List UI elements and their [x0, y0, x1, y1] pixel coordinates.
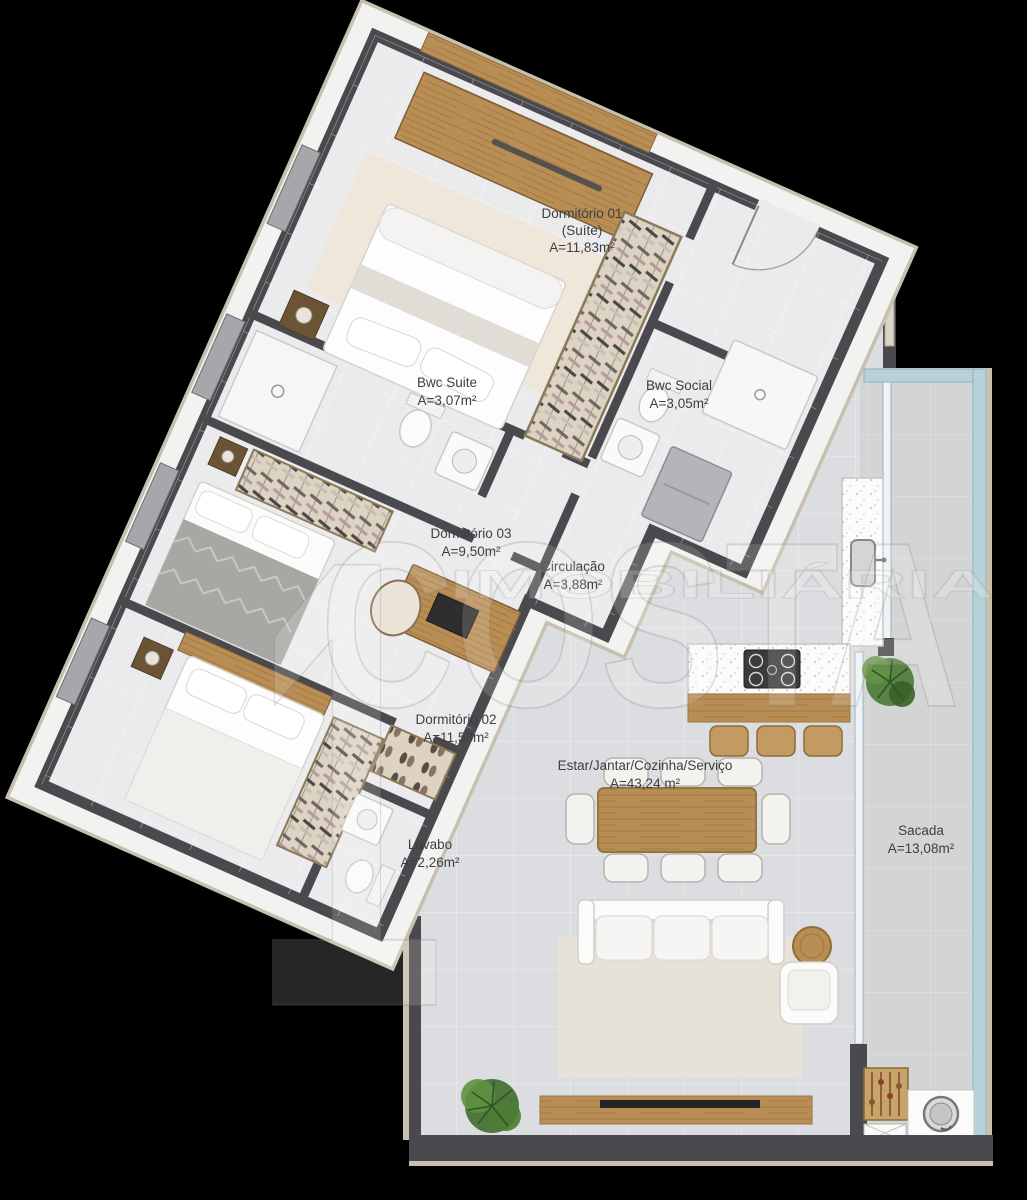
room-name: Dormitório 01 [541, 206, 622, 221]
room-area: A=43,24 m² [610, 776, 681, 791]
watermark-brand: COSTA [320, 493, 960, 756]
sofa-cushion [596, 916, 652, 960]
sofa-cushion [654, 916, 710, 960]
tv-console [540, 1096, 812, 1124]
dining-chair [762, 794, 790, 844]
balcony-outer-trim [986, 368, 992, 1160]
dining-chair [661, 854, 705, 882]
side-table [793, 927, 831, 965]
balcony-sink [908, 1090, 974, 1142]
room-area: A=11,83m² [549, 240, 615, 255]
room-name: Bwc Suite [417, 375, 477, 390]
balcony-railing-right [973, 369, 986, 1155]
dining-chair [718, 854, 762, 882]
bottom-wall [409, 1135, 993, 1166]
floor-plan-canvas: Dormitório 01 (Suíte) A=11,83m² Bwc Suit… [0, 0, 1027, 1200]
sofa-cushion [712, 916, 768, 960]
watermark-tagline: IMOBILIÁRIA [450, 562, 995, 607]
room-area: A=3,05m² [650, 396, 709, 411]
room-area: A=3,07m² [418, 393, 477, 408]
sofa [578, 900, 784, 964]
dining-chair [566, 794, 594, 844]
room-name: Estar/Jantar/Cozinha/Serviço [558, 758, 733, 773]
tv-icon [600, 1100, 760, 1108]
room-suffix: (Suíte) [562, 223, 603, 238]
dining-table [598, 788, 756, 852]
room-name: Bwc Social [646, 378, 712, 393]
floor-plan-drawing: Dormitório 01 (Suíte) A=11,83m² Bwc Suit… [0, 0, 1027, 1200]
room-area: A=13,08m² [888, 841, 955, 856]
barbecue-grill [864, 1068, 908, 1120]
room-name: Sacada [898, 823, 944, 838]
armchair [780, 962, 838, 1024]
balcony-railing-top [864, 369, 986, 382]
dining-chair [604, 854, 648, 882]
